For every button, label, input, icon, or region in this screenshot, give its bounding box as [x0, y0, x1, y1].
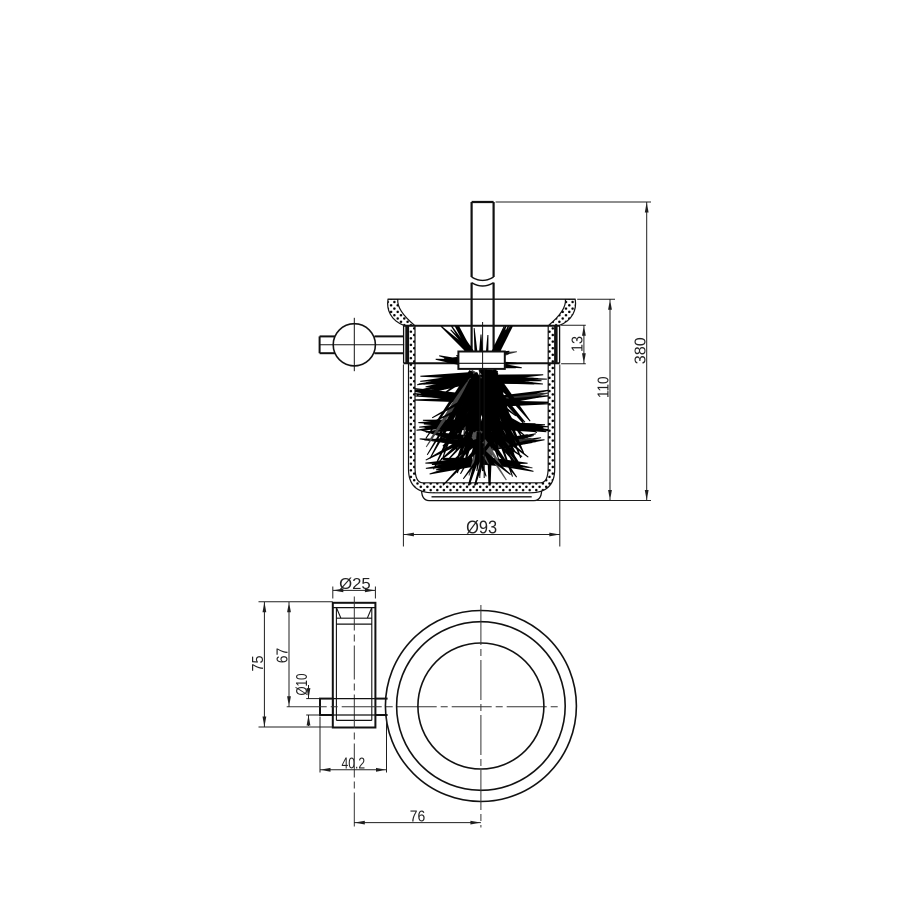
svg-text:40.2: 40.2 [342, 756, 366, 773]
svg-text:67: 67 [275, 648, 292, 664]
svg-text:Ø10: Ø10 [294, 673, 311, 695]
svg-text:380: 380 [632, 337, 649, 364]
svg-text:Ø25: Ø25 [339, 576, 371, 593]
svg-text:Ø93: Ø93 [466, 517, 497, 537]
svg-text:75: 75 [250, 655, 267, 671]
svg-text:76: 76 [410, 808, 426, 825]
svg-text:110: 110 [596, 376, 613, 398]
svg-text:13: 13 [570, 336, 587, 352]
